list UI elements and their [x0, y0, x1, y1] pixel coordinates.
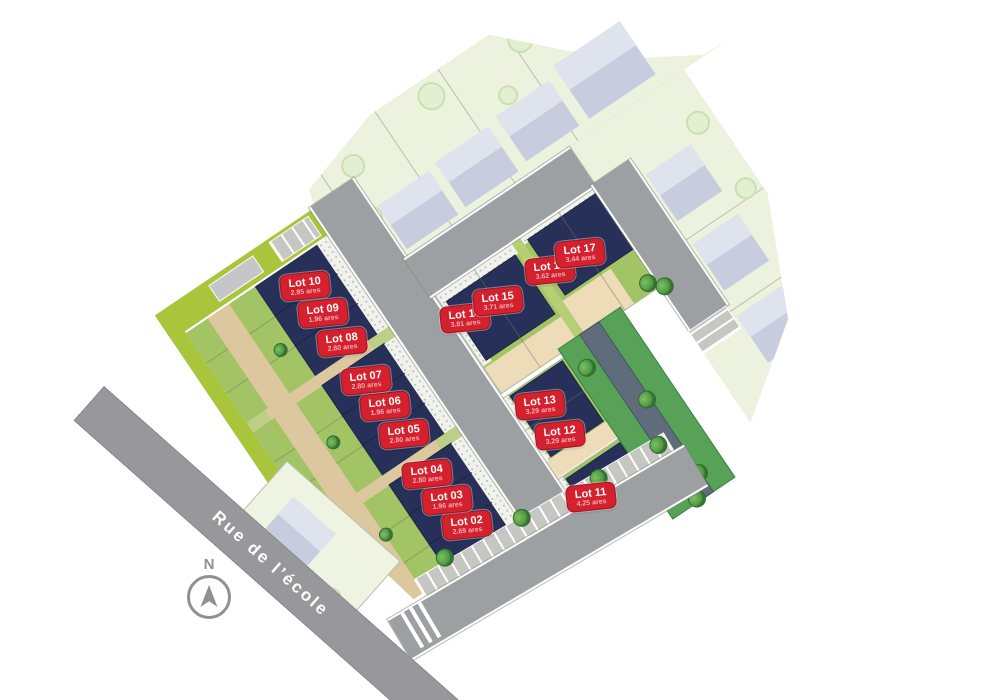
tree-marker — [681, 106, 714, 139]
lot-badge-lot-04[interactable]: Lot 042.80 ares — [401, 458, 454, 490]
tree-marker — [502, 22, 538, 58]
lot-badge-lot-13[interactable]: Lot 133.29 ares — [514, 389, 567, 421]
north-compass: N — [186, 556, 232, 619]
north-label: N — [186, 556, 232, 573]
lot-badge-lot-09[interactable]: Lot 091.96 ares — [297, 297, 350, 329]
tree-marker — [730, 173, 761, 204]
north-arrow-icon — [193, 581, 225, 613]
site-plan-canvas: Rue de l’école N Lot 022.69 aresLot 031.… — [0, 0, 989, 700]
tree-marker — [574, 355, 599, 380]
plan-scene — [0, 0, 989, 700]
lot-badge-lot-08[interactable]: Lot 082.80 ares — [316, 326, 369, 358]
lot-badge-lot-17[interactable]: Lot 173.44 ares — [554, 237, 607, 269]
compass-ring — [187, 575, 231, 619]
tree-marker — [412, 77, 451, 116]
lot-badge-lot-12[interactable]: Lot 123.29 ares — [534, 419, 587, 451]
lot-badge-lot-11[interactable]: Lot 114.25 ares — [565, 481, 618, 513]
lot-badge-lot-15[interactable]: Lot 153.71 ares — [472, 285, 525, 317]
lot-badge-lot-06[interactable]: Lot 061.96 ares — [359, 390, 412, 422]
lot-badge-lot-02[interactable]: Lot 022.69 ares — [441, 509, 494, 541]
lot-badge-lot-07[interactable]: Lot 072.80 ares — [340, 364, 393, 396]
lot-badge-lot-03[interactable]: Lot 031.96 ares — [421, 484, 474, 516]
lot-badge-lot-10[interactable]: Lot 102.85 ares — [279, 270, 332, 302]
lot-badge-lot-05[interactable]: Lot 052.80 ares — [378, 418, 431, 450]
